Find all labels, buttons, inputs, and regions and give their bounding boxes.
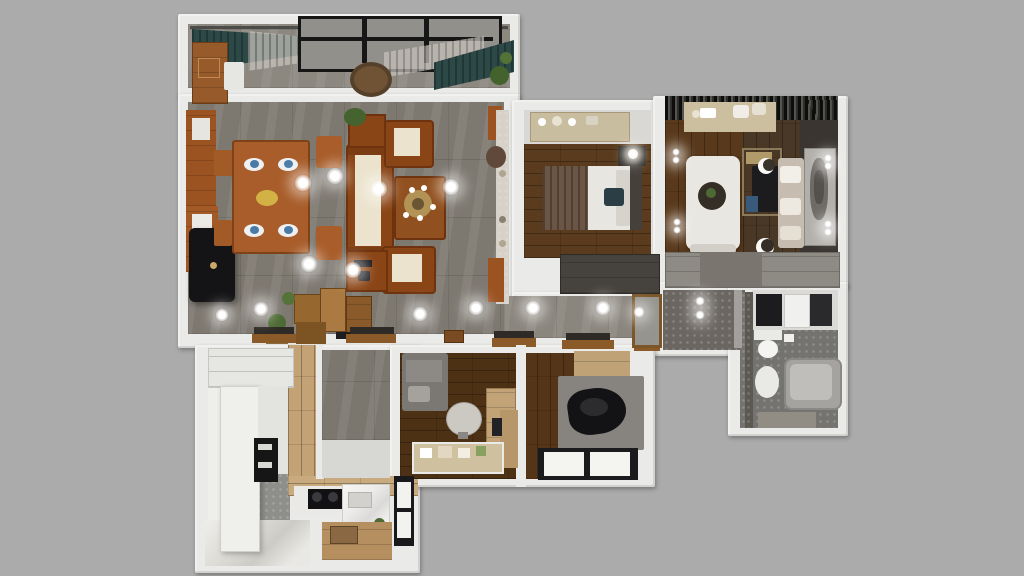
deco-dot-1 [499,170,506,177]
blue-books [746,196,758,212]
bookshelf-books [192,118,210,140]
washing-machine [224,62,244,90]
ceiling-light [215,308,229,322]
ceiling-light [672,156,680,164]
oven-panel-1 [258,444,272,450]
vanity-item-4 [586,116,598,125]
side-table-plant [344,108,366,126]
blue-plate-4 [284,226,293,234]
dining-chair-right-1 [316,136,342,168]
tray-center [412,198,424,210]
storage-crate-3 [296,322,326,344]
vanity-cabinet-white [784,294,810,328]
entry-white-area [322,440,390,478]
ceiling-light [326,167,344,185]
kitchen-window-pane-1 [397,482,411,508]
display-niche [412,442,504,474]
serving-tray [330,526,358,544]
ceiling-light [824,154,832,162]
toilet-tank [754,330,782,340]
sofa-cushions [355,154,381,246]
ceiling-light [442,178,460,196]
deco-dot-3 [499,240,506,247]
crescent-mask-north [763,159,775,171]
niche-item-3 [458,448,470,458]
seat-tray [700,108,716,118]
sparkle-wall [745,292,753,428]
oven-panel-2 [258,462,272,468]
vanity-item-3 [568,118,576,126]
seat-pillow-1 [733,105,749,118]
bed1-blanket [543,166,588,230]
armchair-north-cushion [394,128,420,156]
bedroom3-window-pane-2 [590,452,630,476]
study-sofa-pillow [408,386,430,402]
teacup-2 [421,185,427,191]
vanity-cabinet-black-1 [756,294,782,326]
ceiling-light [344,261,362,279]
vanity-cabinet-black-2 [810,294,832,326]
bed1-headboard [630,166,642,230]
balcony-wreath [350,62,392,97]
hallway-mirror [632,294,662,348]
door-threshold-2 [346,334,396,343]
bed1-teal-cushion [604,188,624,206]
teacup-4 [417,215,423,221]
bed2-tray-plant [706,188,716,198]
floor-picture-frame [444,330,464,343]
desk-monitor [492,418,502,436]
balcony-plant-large [490,66,509,85]
bedroom1-wardrobe [560,254,660,294]
ceiling-light [672,148,680,156]
upper-cabinets [208,348,294,388]
seat-teacup [692,110,700,118]
floor-plant-2 [282,292,295,305]
ceiling-light [412,306,428,322]
piano-gold-dot [210,262,217,269]
paper-holder [784,334,794,342]
large-vase [486,146,506,168]
niche-item-4 [476,446,486,456]
ceiling-light [253,301,269,317]
low-cabinet-dark-segment [700,252,762,286]
study-sofa-seat [406,360,442,382]
ceiling-light [824,228,832,236]
ceiling-light [628,149,638,159]
ceiling-light [633,306,645,318]
ceiling-light [294,174,312,192]
burner-2 [328,492,338,502]
island-sink [348,492,372,508]
teacup-5 [430,204,436,210]
ceiling-light [595,300,611,316]
ceiling-light [300,255,318,273]
swivel-chair [446,402,482,436]
teacup-3 [403,212,409,218]
cabinet-lattice-door [198,58,220,78]
floorplan-3d-render [0,0,1024,576]
balcony-plant-small [500,52,512,64]
art-figure-shadow [814,170,824,204]
vanity-item-1 [538,118,546,126]
door-threshold-3 [492,338,536,347]
burner-1 [312,492,322,502]
dining-chair-left-1 [214,150,232,176]
blue-plate-1 [250,160,259,168]
ceiling-light [468,300,484,316]
door-threshold-4 [562,340,614,349]
niche-item-2 [438,446,452,458]
ceiling-light [673,218,681,226]
kitchen-window-pane-2 [397,512,411,538]
bath-rug [758,412,816,428]
niche-item-1 [420,448,432,458]
bench-pillow-3 [780,226,801,240]
bedroom1-vanity-shelf [530,112,630,142]
deco-dot-2 [499,216,506,223]
blue-plate-3 [250,226,259,234]
tv-console-south [488,258,504,302]
ceiling-light [370,180,388,198]
shower-glass-door [734,290,742,348]
dining-chair-left-2 [214,220,232,246]
ceiling-light [525,300,541,316]
dining-chair-right-2 [316,226,342,260]
ceiling-light [673,226,681,234]
ceiling-light [695,310,705,320]
teacup-1 [409,187,415,193]
bench-pillow-1 [780,166,801,183]
bathtub-inner [790,364,832,400]
bedroom3-cabinet [574,351,630,377]
ceiling-light [824,162,832,170]
marble-accent-wall [322,350,390,440]
crescent-mask-south [761,239,774,252]
bidet [755,366,779,398]
vanity-item-2 [552,116,562,126]
seat-pillow-2 [752,103,766,115]
armchair-south-cushion [392,254,422,282]
bench-pillow-2 [780,198,801,215]
ceiling-light [695,296,705,306]
ceiling-light [824,220,832,228]
jacket-highlight [580,398,608,416]
bedroom3-window-pane-1 [544,452,584,476]
door-threshold-1 [252,334,296,343]
swivel-chair-base [458,432,468,439]
skylight-bar-vertical-1 [362,19,367,63]
table-centerpiece [256,190,278,206]
blue-plate-2 [284,160,293,168]
toilet-bowl [758,340,778,358]
